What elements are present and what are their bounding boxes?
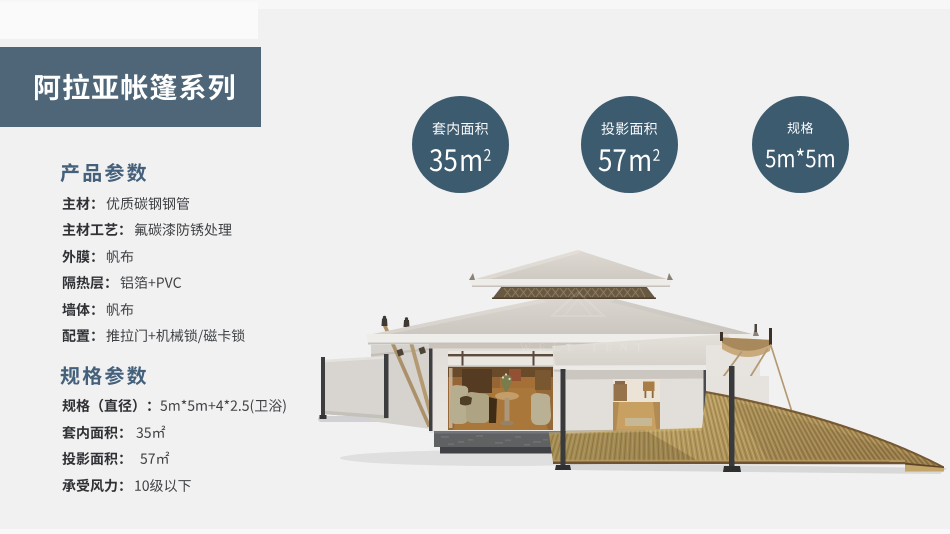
svg-text:WELL TENT: WELL TENT [520, 340, 649, 354]
